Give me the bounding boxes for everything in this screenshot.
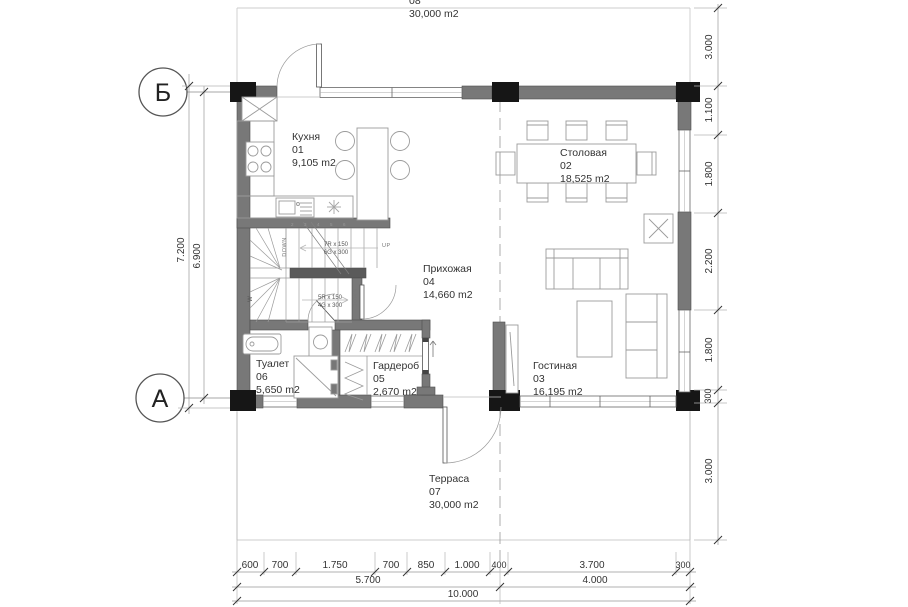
floor-plan-image: Б А <box>0 0 908 607</box>
chair-icon <box>391 132 410 151</box>
dim-bottom-7: 3.700 <box>579 560 604 571</box>
entrance-door <box>277 44 322 97</box>
bathtub-icon <box>243 334 281 354</box>
svg-text:02: 02 <box>560 160 572 172</box>
stair-down-label-right: DOWN <box>353 288 359 307</box>
chair-icon <box>336 161 355 180</box>
dining-chair-icon <box>566 183 587 202</box>
shower-icon <box>294 356 338 398</box>
dim-right-1: 1.100 <box>704 97 715 122</box>
svg-text:06: 06 <box>256 371 268 383</box>
dim-bottom-6: 400 <box>491 560 506 570</box>
svg-text:16,195 m2: 16,195 m2 <box>533 386 583 398</box>
side-table <box>644 214 673 243</box>
svg-text:01: 01 <box>292 144 304 156</box>
dim-right-2: 1.800 <box>704 161 715 186</box>
living-furniture <box>506 214 673 393</box>
sink-icon <box>276 198 314 217</box>
svg-text:30,000 m2: 30,000 m2 <box>409 8 459 20</box>
dining-chair-icon <box>527 183 548 202</box>
svg-text:05: 05 <box>373 373 385 385</box>
room-label-hallway: Прихожая 04 14,660 m2 <box>423 263 473 301</box>
dining-chair-icon <box>606 183 627 202</box>
room-label-living: Гостиная 03 16,195 m2 <box>533 360 583 398</box>
sofa-large <box>546 249 628 289</box>
floor-plan-canvas: Б А <box>0 0 908 607</box>
dining-chair-icon <box>496 152 515 175</box>
burner-star-icon <box>327 200 341 214</box>
stair-winder-label: W <box>248 296 254 302</box>
svg-text:Туалет: Туалет <box>256 358 289 370</box>
svg-text:07: 07 <box>429 486 441 498</box>
dim-bottom-2: 1.750 <box>322 560 347 571</box>
svg-text:04: 04 <box>423 276 435 288</box>
room-label-kitchen: Кухня 01 9,105 m2 <box>292 131 336 169</box>
stair-up-label: UP <box>382 243 391 249</box>
sofa-small <box>626 294 667 378</box>
chair-icon <box>391 161 410 180</box>
dim-right-4: 1.800 <box>704 337 715 362</box>
svg-text:9,105 m2: 9,105 m2 <box>292 157 336 169</box>
svg-text:03: 03 <box>533 373 545 385</box>
chair-icon <box>336 132 355 151</box>
dining-chair-icon <box>527 121 548 140</box>
dim-right-6: 3.000 <box>704 458 715 483</box>
stair-down-label-left: DOWN <box>282 237 288 256</box>
svg-text:08: 08 <box>409 0 421 7</box>
washbasin-icon <box>309 327 332 357</box>
dining-chair-icon <box>606 121 627 140</box>
wardrobe-sliding-door <box>423 338 437 374</box>
coffee-table <box>577 301 612 357</box>
hangers-icon <box>345 334 416 352</box>
dim-total-left: 5.700 <box>355 575 380 586</box>
dining-chair-icon <box>637 152 656 175</box>
dim-bottom-1: 700 <box>272 560 289 571</box>
stair-annotations: 7R x 150 6G x 300 5R x 150 4G x 300 DOWN… <box>248 222 391 309</box>
svg-text:18,525 m2: 18,525 m2 <box>560 173 610 185</box>
dim-overall: 10.000 <box>448 589 479 600</box>
dim-bottom-5: 1.000 <box>454 560 479 571</box>
room-label-terrace: Терраса 07 30,000 m2 <box>429 473 479 511</box>
dim-bottom-0: 600 <box>242 560 259 571</box>
stove-icon <box>246 142 274 176</box>
dim-bottom-4: 850 <box>418 560 435 571</box>
dim-left-overall: 7.200 <box>176 237 187 262</box>
svg-text:5,650 m2: 5,650 m2 <box>256 384 300 396</box>
room-label-toilet: Туалет 06 5,650 m2 <box>256 358 300 396</box>
stair-note-lower-goings: 4G x 300 <box>318 303 343 309</box>
svg-text:Терраса: Терраса <box>429 473 469 485</box>
stair-note-upper-risers: 7R x 150 <box>324 242 349 248</box>
svg-text:Гардероб: Гардероб <box>373 360 419 372</box>
dim-bottom-3: 700 <box>383 560 400 571</box>
svg-text:Гостиная: Гостиная <box>533 360 577 372</box>
stairs-door <box>360 285 396 319</box>
dim-left-inner: 6.900 <box>192 243 203 268</box>
dining-furniture <box>496 121 656 202</box>
dim-right-0: 3.000 <box>704 34 715 59</box>
dining-chair-icon <box>566 121 587 140</box>
tv-icon <box>506 325 518 393</box>
svg-text:2,670 m2: 2,670 m2 <box>373 386 417 398</box>
grid-marker-a-label: А <box>152 385 169 413</box>
dim-total-right: 4.000 <box>582 575 607 586</box>
dim-right-5: 300 <box>703 388 713 403</box>
vent-shaft-icon <box>242 97 277 121</box>
dim-right-3: 2.200 <box>704 248 715 273</box>
svg-text:Прихожая: Прихожая <box>423 263 472 275</box>
dim-bottom-8: 300 <box>675 560 690 570</box>
grid-marker-b-label: Б <box>155 79 171 107</box>
kitchen-island-table <box>336 128 410 220</box>
svg-text:30,000 m2: 30,000 m2 <box>429 499 479 511</box>
room-label-wardrobe: Гардероб 05 2,670 m2 <box>373 360 419 398</box>
room-label-balcony-top: 08 30,000 m2 <box>409 0 459 20</box>
stair-note-lower-risers: 5R x 150 <box>318 295 343 301</box>
svg-text:Столовая: Столовая <box>560 147 607 159</box>
svg-text:14,660 m2: 14,660 m2 <box>423 289 473 301</box>
shelves-zigzag-icon <box>345 362 363 400</box>
stair-note-upper-goings: 6G x 300 <box>324 250 349 256</box>
svg-text:Кухня: Кухня <box>292 131 320 143</box>
